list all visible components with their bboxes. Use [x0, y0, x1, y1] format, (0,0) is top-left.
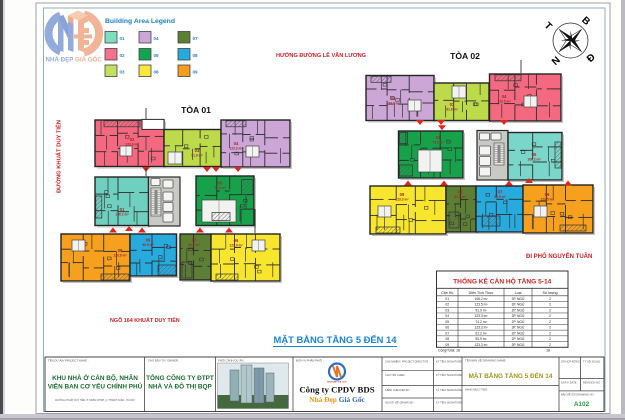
svg-text:NGÕ 164 KHUẤT DUY TIÊN: NGÕ 164 KHUẤT DUY TIÊN	[110, 316, 180, 324]
svg-text:2: 2	[549, 308, 551, 312]
svg-text:09: 09	[193, 70, 199, 75]
svg-text:3P. NGỦ: 3P. NGỦ	[512, 342, 525, 347]
svg-text:2: 2	[549, 337, 551, 341]
svg-text:05: 05	[445, 320, 449, 324]
svg-text:08: 08	[445, 337, 449, 341]
svg-text:TÊN BẢN VẼ/ DRAWING NAME:: TÊN BẢN VẼ/ DRAWING NAME:	[465, 358, 506, 363]
svg-text:09: 09	[445, 343, 449, 347]
svg-text:08: 08	[146, 238, 151, 243]
svg-text:2: 2	[549, 297, 551, 301]
svg-text:3P. NGỦ: 3P. NGỦ	[512, 313, 525, 318]
svg-text:123.5 m²: 123.5 m²	[497, 100, 511, 104]
svg-text:03: 03	[195, 148, 200, 153]
svg-text:MẶT BẰNG TẦNG 5 ĐẾN 14: MẶT BẰNG TẦNG 5 ĐẾN 14	[274, 334, 398, 345]
svg-text:01: 01	[120, 207, 125, 212]
svg-text:01: 01	[445, 297, 449, 301]
svg-text:2: 2	[549, 320, 551, 324]
svg-text:3P. NGỦ: 3P. NGỦ	[512, 325, 525, 330]
svg-text:04: 04	[154, 36, 160, 41]
svg-text:08: 08	[193, 53, 199, 58]
svg-text:ĐƯỜNG KHUẤT DUY TIÊN: ĐƯỜNG KHUẤT DUY TIÊN	[55, 120, 63, 193]
svg-text:01: 01	[120, 36, 126, 41]
svg-text:06: 06	[154, 70, 160, 75]
svg-text:05: 05	[154, 53, 160, 58]
svg-text:02: 02	[391, 96, 396, 101]
svg-text:02: 02	[445, 303, 449, 307]
svg-text:2P. NGỦ: 2P. NGỦ	[512, 307, 525, 312]
svg-text:61.2 m²: 61.2 m²	[475, 331, 487, 335]
svg-text:A102: A102	[574, 401, 590, 408]
svg-text:Công ty CPDV BDS: Công ty CPDV BDS	[299, 385, 374, 395]
svg-text:Loại: Loại	[515, 291, 522, 295]
svg-text:05: 05	[532, 152, 537, 157]
svg-text:2: 2	[549, 326, 551, 330]
svg-text:123.9 m²: 123.9 m²	[113, 254, 127, 258]
svg-text:3P. NGỦ: 3P. NGỦ	[512, 302, 525, 307]
svg-text:61.6 m²: 61.6 m²	[446, 108, 458, 112]
svg-text:03: 03	[445, 308, 449, 312]
svg-text:06: 06	[234, 238, 239, 243]
svg-text:Building Area Legend: Building Area Legend	[105, 18, 175, 25]
svg-text:KHU NHÀ Ở CÁN BỘ, NHÂN: KHU NHÀ Ở CÁN BỘ, NHÂN	[52, 373, 138, 382]
svg-text:123.5 m²: 123.5 m²	[474, 303, 488, 307]
svg-text:09: 09	[118, 248, 123, 253]
svg-text:90.9 m²: 90.9 m²	[142, 243, 154, 247]
svg-text:ĐƯỜNG KHUẤT DUY TIÊN, P. NHÂN: ĐƯỜNG KHUẤT DUY TIÊN, P. NHÂN CHÍNH, Q. …	[55, 399, 135, 402]
svg-text:2: 2	[549, 314, 551, 318]
svg-text:04: 04	[502, 94, 507, 99]
svg-text:07: 07	[498, 190, 503, 195]
svg-text:ĐƠN VỊ PHÂN PHỐI :: ĐƠN VỊ PHÂN PHỐI :	[296, 358, 324, 363]
svg-text:06: 06	[545, 192, 550, 197]
svg-text:2P. NGỦ: 2P. NGỦ	[512, 330, 525, 335]
svg-text:123.3 m²: 123.3 m²	[474, 343, 488, 347]
svg-text:123.3 m²: 123.3 m²	[229, 147, 243, 151]
svg-text:2P. NGỦ: 2P. NGỦ	[512, 336, 525, 341]
svg-text:HƯỚNG ĐƯỜNG LÊ VĂN LƯƠNG: HƯỚNG ĐƯỜNG LÊ VĂN LƯƠNG	[276, 51, 366, 59]
svg-text:66.9 m²: 66.9 m²	[494, 195, 506, 199]
svg-text:REVISION NO :: REVISION NO :	[583, 381, 602, 385]
svg-text:123.3 m²: 123.3 m²	[395, 198, 409, 202]
svg-text:TỔNG CÔNG TY ĐTPT: TỔNG CÔNG TY ĐTPT	[146, 373, 214, 382]
svg-text:TÊN DỰ ÁN/ PROJECT NAME :: TÊN DỰ ÁN/ PROJECT NAME :	[48, 358, 89, 363]
svg-text:NGÀY/ DATE :: NGÀY/ DATE :	[561, 381, 578, 385]
svg-text:106.2 m²: 106.2 m²	[115, 213, 129, 217]
svg-text:61.2 m²: 61.2 m²	[454, 195, 466, 199]
svg-text:04: 04	[445, 314, 449, 318]
svg-text:PHỐI CẢNH DỰ ÁN :: PHỐI CẢNH DỰ ÁN :	[218, 358, 245, 363]
svg-text:2: 2	[549, 343, 551, 347]
svg-text:07: 07	[193, 36, 199, 41]
svg-text:ĐI PHỐ NGUYỄN TUÂN: ĐI PHỐ NGUYỄN TUÂN	[526, 253, 592, 260]
svg-text:09: 09	[400, 192, 405, 197]
svg-text:02: 02	[120, 53, 126, 58]
svg-text:61.2 m²: 61.2 m²	[188, 243, 200, 247]
svg-text:123.3 m²: 123.3 m²	[386, 102, 400, 106]
svg-text:2: 2	[549, 331, 551, 335]
svg-text:01: 01	[436, 135, 441, 140]
svg-text:08: 08	[458, 190, 463, 195]
svg-text:123.3 m²: 123.3 m²	[474, 326, 488, 330]
svg-text:123.5 m²: 123.5 m²	[540, 198, 554, 202]
svg-text:07: 07	[445, 331, 449, 335]
svg-text:74.2 m²: 74.2 m²	[432, 141, 444, 145]
svg-text:03: 03	[120, 70, 126, 75]
svg-text:02: 02	[130, 137, 135, 142]
svg-text:123.9 m²: 123.9 m²	[125, 143, 139, 147]
svg-text:NHÀ VÀ ĐÔ THỊ BQP: NHÀ VÀ ĐÔ THỊ BQP	[148, 382, 212, 391]
svg-text:2P. NGỦ: 2P. NGỦ	[512, 319, 525, 324]
svg-text:91.9 m²: 91.9 m²	[191, 154, 203, 158]
svg-text:Cộng/Total: 18: Cộng/Total: 18	[438, 349, 460, 353]
svg-text:Nhà Đẹp Giá Gốc: Nhà Đẹp Giá Gốc	[309, 395, 365, 404]
svg-text:HẠNG MỤC/ ITEM :: HẠNG MỤC/ ITEM :	[465, 388, 488, 392]
svg-text:18: 18	[546, 349, 550, 353]
svg-text:106.2 m²: 106.2 m²	[474, 297, 488, 301]
svg-text:91.9 m²: 91.9 m²	[475, 308, 487, 312]
svg-text:Căn Hộ: Căn Hộ	[441, 291, 453, 295]
svg-text:GIÁ GỐC: GIÁ GỐC	[75, 57, 102, 64]
svg-text:123.3 m²: 123.3 m²	[474, 314, 488, 318]
svg-text:TÒA 01: TÒA 01	[181, 104, 211, 115]
svg-text:123.9 m²: 123.9 m²	[229, 244, 243, 248]
svg-text:03: 03	[450, 102, 455, 107]
svg-text:Diện Tích Thực: Diện Tích Thực	[469, 291, 494, 295]
svg-text:04: 04	[234, 141, 239, 146]
svg-text:2: 2	[549, 303, 551, 307]
svg-text:90.9 m²: 90.9 m²	[475, 337, 487, 341]
svg-text:07: 07	[192, 238, 197, 243]
svg-text:05: 05	[218, 181, 223, 186]
svg-text:106.2 m²: 106.2 m²	[527, 158, 541, 162]
svg-text:TÒA 02: TÒA 02	[450, 50, 480, 61]
svg-text:06: 06	[445, 326, 449, 330]
svg-text:NHÀ ĐẸP: NHÀ ĐẸP	[46, 57, 74, 64]
svg-text:CHỦ ĐẦU TƯ/ OWNER :: CHỦ ĐẦU TƯ/ OWNER :	[148, 358, 180, 363]
svg-text:NHÀ ĐẸP GIÁ GỐC: NHÀ ĐẸP GIÁ GỐC	[327, 381, 347, 384]
svg-text:3P. NGỦ: 3P. NGỦ	[512, 296, 525, 301]
svg-text:Số lượng: Số lượng	[543, 291, 558, 295]
svg-text:74.2 m²: 74.2 m²	[475, 320, 487, 324]
svg-text:74.3 m²: 74.3 m²	[214, 186, 226, 190]
